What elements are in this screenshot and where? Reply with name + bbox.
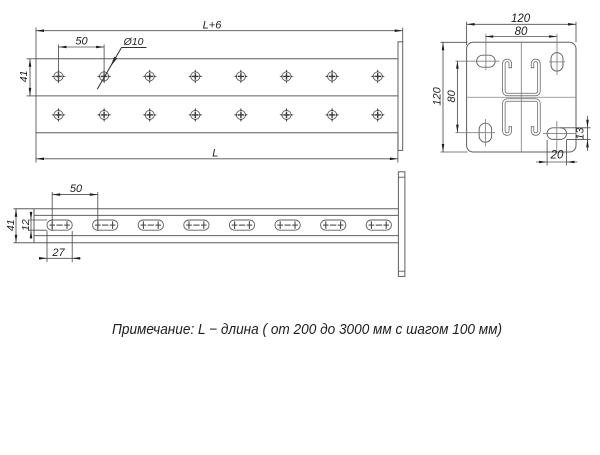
svg-text:80: 80 [446,89,458,102]
svg-text:L: L [212,148,218,160]
svg-text:50: 50 [70,183,83,195]
svg-text:41: 41 [5,219,17,231]
svg-text:20: 20 [550,149,564,161]
svg-text:Примечание: L − длина ( от 200: Примечание: L − длина ( от 200 до 3000 м… [112,322,502,338]
svg-text:L+6: L+6 [203,19,223,31]
svg-text:50: 50 [75,36,88,48]
svg-text:13: 13 [575,127,587,140]
svg-text:120: 120 [431,86,443,105]
svg-text:80: 80 [515,26,528,38]
svg-text:12: 12 [20,219,32,231]
svg-text:27: 27 [51,247,65,259]
svg-text:41: 41 [18,71,30,83]
svg-text:120: 120 [511,13,531,25]
svg-text:Ø10: Ø10 [123,36,144,48]
